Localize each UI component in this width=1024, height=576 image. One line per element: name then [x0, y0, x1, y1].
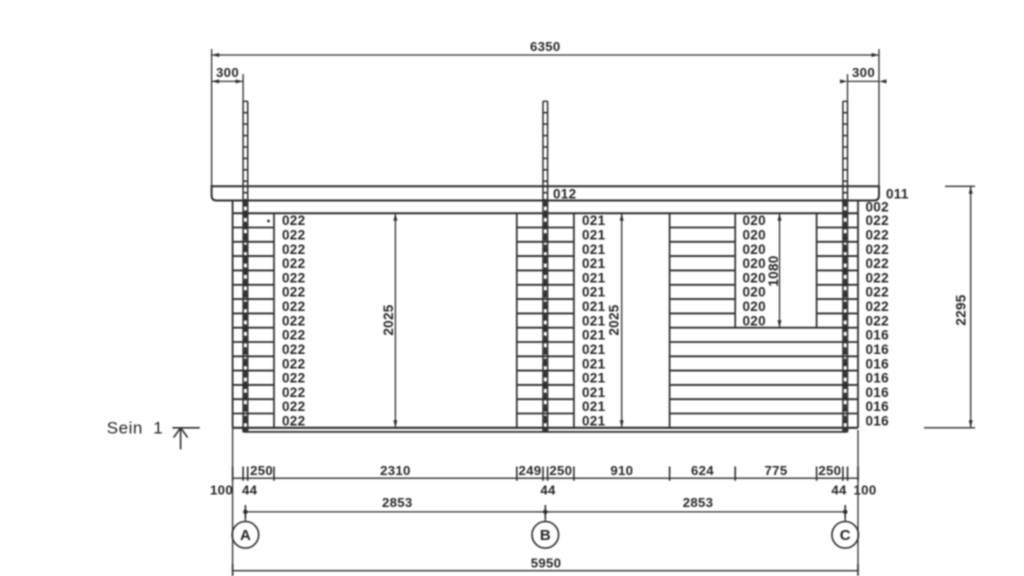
svg-text:016: 016 — [866, 356, 890, 371]
svg-text:022: 022 — [282, 356, 305, 371]
svg-text:021: 021 — [582, 270, 606, 285]
svg-text:022: 022 — [282, 328, 305, 343]
svg-text:022: 022 — [866, 256, 889, 271]
svg-text:021: 021 — [582, 228, 606, 243]
svg-text:022: 022 — [282, 414, 305, 429]
svg-text:2853: 2853 — [683, 495, 714, 510]
svg-text:100: 100 — [854, 483, 877, 498]
svg-text:022: 022 — [282, 285, 305, 300]
svg-text:2025: 2025 — [607, 304, 622, 335]
svg-text:A: A — [240, 527, 251, 544]
svg-text:250: 250 — [818, 463, 841, 478]
svg-text:022: 022 — [282, 299, 305, 314]
svg-text:300: 300 — [216, 65, 239, 80]
svg-text:300: 300 — [852, 65, 875, 80]
svg-text:021: 021 — [582, 371, 606, 386]
svg-text:100: 100 — [210, 483, 233, 498]
svg-text:021: 021 — [582, 242, 606, 257]
svg-text:44: 44 — [540, 483, 556, 498]
svg-text:022: 022 — [866, 242, 889, 257]
svg-text:022: 022 — [282, 399, 305, 414]
svg-text:022: 022 — [282, 228, 305, 243]
svg-text:022: 022 — [282, 342, 305, 357]
svg-text:022: 022 — [282, 213, 305, 228]
svg-text:016: 016 — [866, 385, 890, 400]
svg-text:022: 022 — [866, 313, 889, 328]
svg-text:C: C — [840, 527, 851, 544]
svg-text:021: 021 — [582, 313, 606, 328]
svg-text:020: 020 — [743, 285, 766, 300]
svg-text:016: 016 — [866, 414, 890, 429]
svg-text:022: 022 — [282, 256, 305, 271]
svg-text:2025: 2025 — [381, 304, 396, 335]
svg-text:250: 250 — [250, 463, 273, 478]
svg-text:021: 021 — [582, 342, 606, 357]
svg-text:021: 021 — [582, 385, 606, 400]
svg-text:020: 020 — [743, 270, 766, 285]
svg-text:021: 021 — [582, 328, 606, 343]
svg-text:022: 022 — [866, 299, 889, 314]
svg-text:Sein 1: Sein 1 — [107, 419, 163, 438]
svg-text:775: 775 — [765, 463, 788, 478]
svg-text:016: 016 — [866, 399, 890, 414]
svg-text:022: 022 — [866, 213, 889, 228]
svg-text:022: 022 — [282, 371, 305, 386]
svg-text:022: 022 — [866, 270, 889, 285]
svg-text:020: 020 — [743, 213, 766, 228]
svg-text:022: 022 — [866, 285, 889, 300]
svg-text:021: 021 — [582, 213, 606, 228]
svg-text:016: 016 — [866, 328, 890, 343]
svg-text:020: 020 — [743, 242, 766, 257]
svg-text:012: 012 — [553, 186, 576, 201]
svg-text:022: 022 — [866, 228, 889, 243]
svg-text:022: 022 — [282, 313, 305, 328]
svg-text:44: 44 — [831, 483, 847, 498]
svg-text:2295: 2295 — [953, 294, 968, 325]
svg-text:6350: 6350 — [530, 39, 561, 54]
svg-text:016: 016 — [866, 342, 890, 357]
svg-text:44: 44 — [242, 483, 258, 498]
svg-text:020: 020 — [743, 256, 766, 271]
svg-text:021: 021 — [582, 285, 606, 300]
svg-text:B: B — [540, 527, 551, 544]
svg-text:5950: 5950 — [531, 556, 562, 571]
svg-text:910: 910 — [610, 463, 633, 478]
svg-text:020: 020 — [743, 228, 766, 243]
svg-text:016: 016 — [866, 371, 890, 386]
svg-text:021: 021 — [582, 399, 606, 414]
svg-text:021: 021 — [582, 414, 606, 429]
svg-text:020: 020 — [743, 313, 766, 328]
svg-text:021: 021 — [582, 256, 606, 271]
svg-text:022: 022 — [282, 385, 305, 400]
svg-text:249: 249 — [518, 463, 541, 478]
svg-text:020: 020 — [743, 299, 766, 314]
svg-text:250: 250 — [549, 463, 572, 478]
svg-text:1080: 1080 — [766, 255, 781, 286]
svg-text:011: 011 — [886, 186, 909, 201]
svg-text:022: 022 — [282, 270, 305, 285]
svg-text:022: 022 — [282, 242, 305, 257]
svg-text:624: 624 — [691, 463, 714, 478]
svg-text:021: 021 — [582, 299, 606, 314]
svg-text:2853: 2853 — [382, 495, 413, 510]
svg-text:2310: 2310 — [380, 463, 411, 478]
svg-text:021: 021 — [582, 356, 606, 371]
